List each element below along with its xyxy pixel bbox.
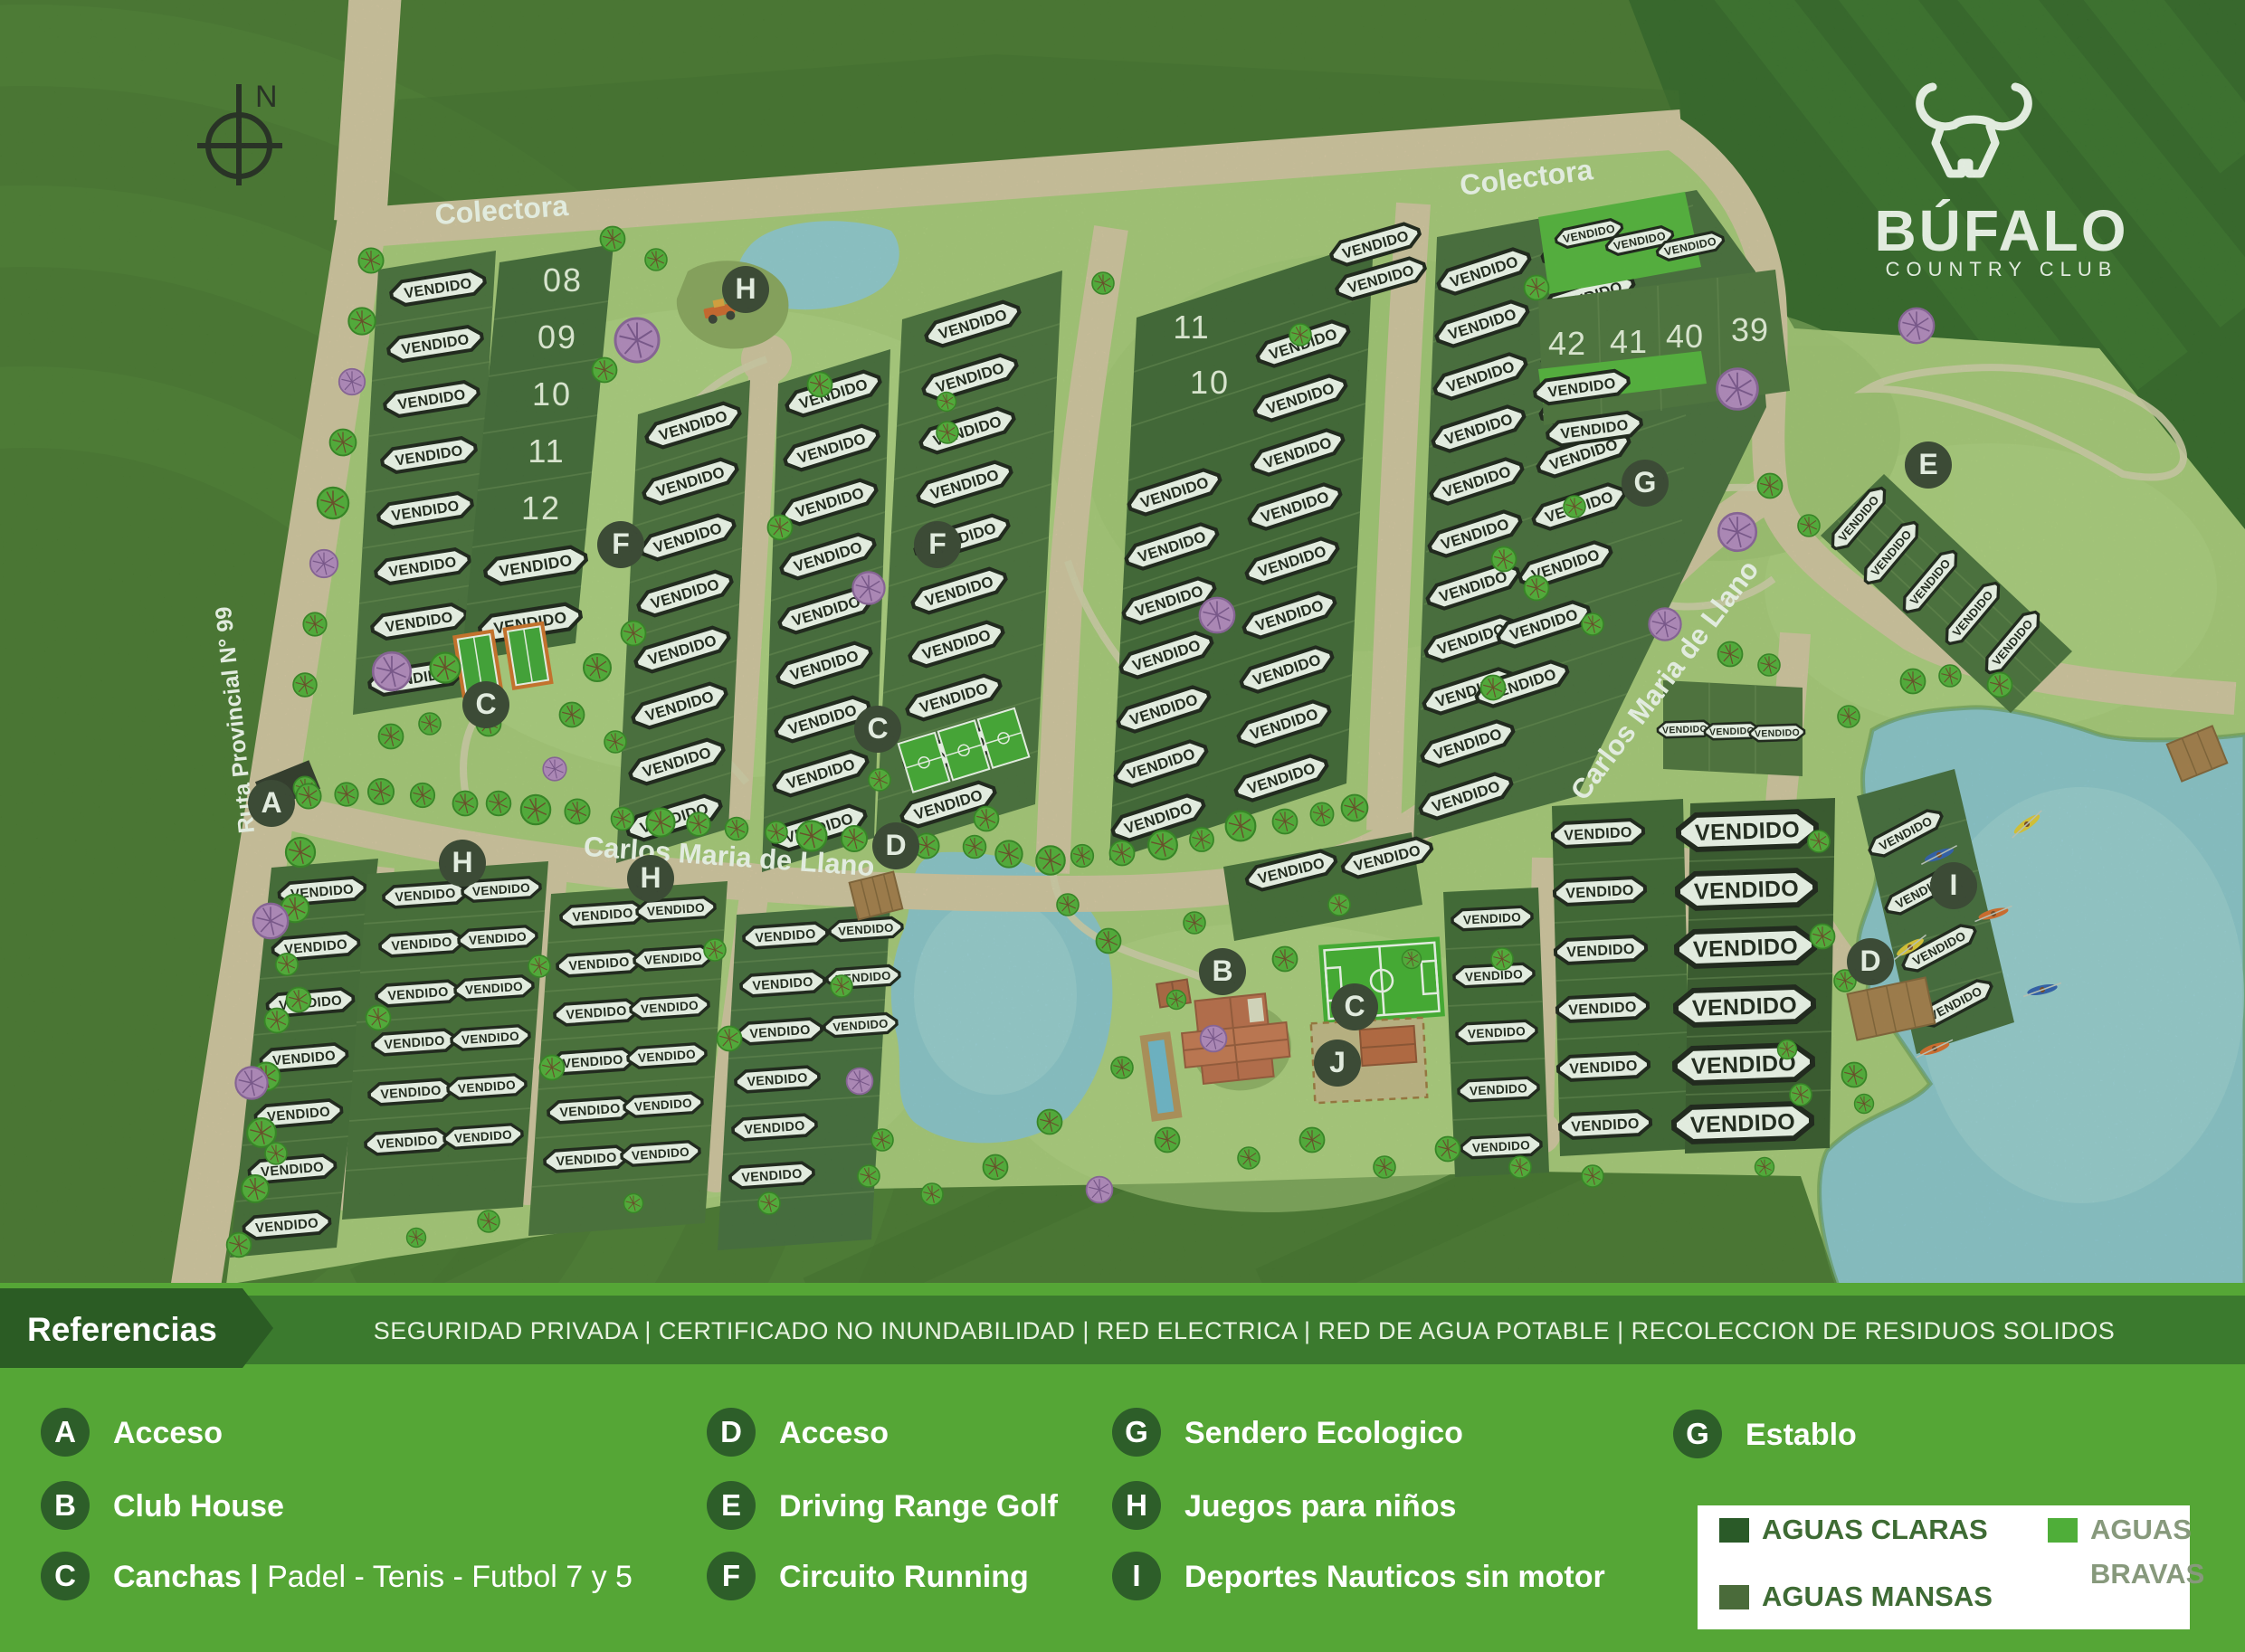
svg-text:E: E: [721, 1488, 741, 1522]
svg-text:Referencias: Referencias: [27, 1311, 217, 1348]
svg-text:Acceso: Acceso: [779, 1416, 889, 1450]
svg-text:C: C: [54, 1559, 76, 1592]
svg-text:Juegos para niños: Juegos para niños: [1184, 1489, 1456, 1524]
svg-text:G: G: [1125, 1415, 1148, 1448]
svg-text:Club House: Club House: [113, 1489, 284, 1524]
svg-text:AGUAS MANSAS: AGUAS MANSAS: [1762, 1581, 1993, 1612]
svg-text:D: D: [720, 1415, 742, 1448]
svg-text:G: G: [1686, 1417, 1709, 1450]
svg-text:Acceso: Acceso: [113, 1416, 223, 1450]
svg-text:H: H: [1126, 1488, 1147, 1522]
svg-text:Sendero Ecologico: Sendero Ecologico: [1184, 1416, 1463, 1450]
svg-text:BRAVAS: BRAVAS: [2090, 1558, 2204, 1590]
svg-text:AGUAS CLARAS: AGUAS CLARAS: [1762, 1514, 1988, 1545]
svg-text:Driving Range Golf: Driving Range Golf: [779, 1489, 1059, 1524]
svg-text:B: B: [54, 1488, 76, 1522]
svg-text:AGUAS: AGUAS: [2090, 1514, 2192, 1545]
svg-text:A: A: [54, 1415, 76, 1448]
svg-text:Circuito Running: Circuito Running: [779, 1560, 1029, 1594]
svg-text:Deportes Nauticos sin motor: Deportes Nauticos sin motor: [1184, 1560, 1605, 1594]
svg-text:Establo: Establo: [1746, 1418, 1857, 1452]
svg-text:SEGURIDAD PRIVADA | CERTIFICAD: SEGURIDAD PRIVADA | CERTIFICADO NO INUND…: [374, 1317, 2115, 1344]
svg-text:Canchas | Padel - Tenis - Futb: Canchas | Padel - Tenis - Futbol 7 y 5: [113, 1560, 633, 1594]
svg-text:I: I: [1132, 1559, 1140, 1592]
svg-text:F: F: [722, 1559, 740, 1592]
